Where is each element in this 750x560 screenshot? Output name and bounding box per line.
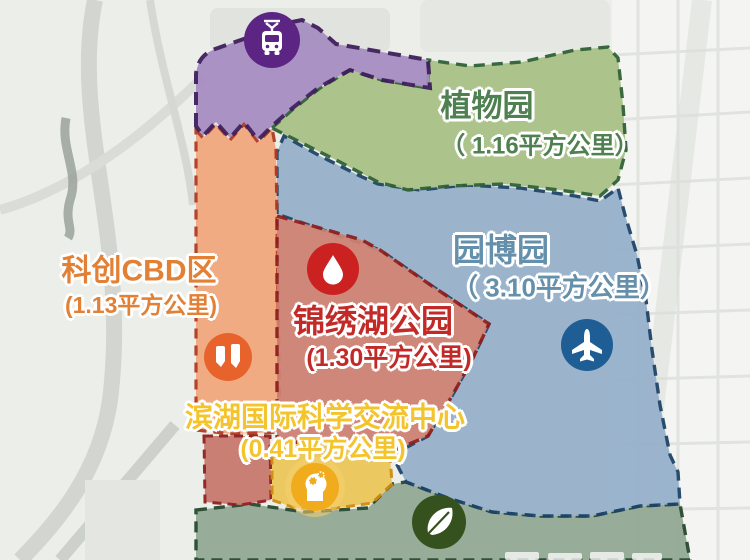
- innovation-head-icon: [285, 457, 345, 517]
- label-jinxiu-lake-park-area: (1.30平方公里): [306, 345, 471, 371]
- water-drop-icon: [307, 243, 359, 295]
- airplane-icon: [561, 319, 613, 371]
- label-jinxiu-lake-park: 锦绣湖公园: [293, 305, 453, 339]
- label-science-exchange-center-area: (0.41平方公里): [240, 436, 405, 462]
- label-botanical-garden-area: （ 1.16平方公里）: [441, 133, 638, 158]
- planning-map: 植物园 （ 1.16平方公里） 园博园 （ 3.10平方公里） 科创CBD区 (…: [0, 0, 750, 560]
- label-botanical-garden: 植物园: [441, 91, 534, 124]
- label-sci-tech-cbd-area: (1.13平方公里): [65, 293, 217, 317]
- leaf-icon: [412, 495, 466, 549]
- label-garden-expo-park: 园博园: [453, 234, 549, 268]
- tram-icon: [244, 12, 300, 68]
- buildings-icon: [204, 333, 252, 381]
- label-sci-tech-cbd: 科创CBD区: [62, 255, 217, 287]
- label-science-exchange-center: 滨湖国际科学交流中心: [185, 402, 465, 431]
- label-garden-expo-park-area: （ 3.10平方公里）: [452, 274, 666, 301]
